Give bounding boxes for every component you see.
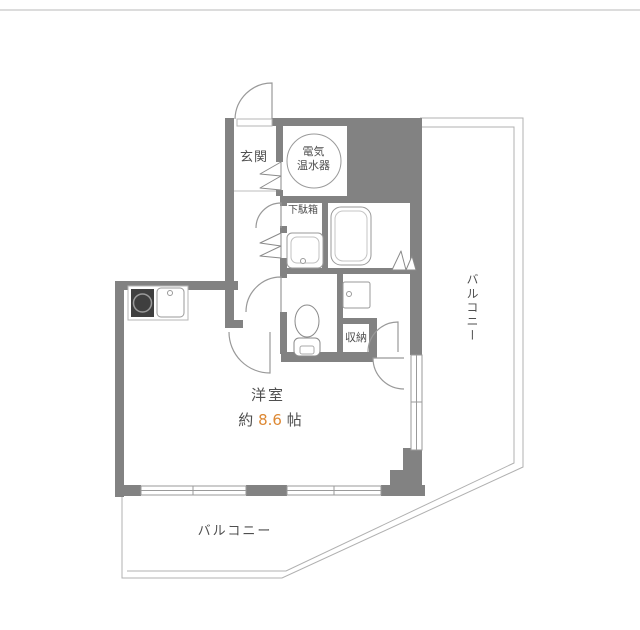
bathroom — [331, 207, 371, 265]
entrance-threshold — [237, 119, 272, 126]
floorplan-page: 玄関 電気 温水器 下駄箱 収納 洋室 約 8.6 帖 バルコニー バルコニー — [0, 0, 640, 630]
floorplan-drawing — [0, 0, 640, 630]
water-heater-label-line1: 電気 — [285, 145, 342, 159]
toilet — [294, 305, 320, 356]
balcony-bottom-label: バルコニー — [188, 525, 282, 540]
wall-bottom-seg1 — [115, 485, 141, 496]
wall-shaft — [347, 118, 422, 203]
water-heater-label-line2: 温水器 — [285, 159, 342, 173]
corridor-mainroom-door-arc — [229, 332, 270, 373]
wall-toilet-right — [337, 274, 343, 358]
entrance-door-arc — [235, 83, 272, 119]
toilet-door-arc — [246, 277, 281, 312]
balcony-right-label: バルコニー — [458, 265, 478, 350]
toilet-tank — [294, 338, 320, 356]
wall-heater-bottom — [283, 196, 347, 203]
wall-bottom-seg2 — [246, 485, 287, 496]
toilet-bowl — [295, 305, 319, 337]
kitchen-stove — [131, 289, 154, 317]
water-heater-label: 電気 温水器 — [285, 145, 342, 173]
bath-door-triangle-large — [392, 251, 406, 270]
sink-faucet-icon — [168, 291, 173, 296]
storage-label: 収納 — [339, 332, 373, 345]
corridor-folding-door-upper — [260, 233, 281, 246]
wall-corridor-stub — [225, 320, 243, 328]
wall-mainroom-west — [115, 281, 124, 497]
washroom-basin — [287, 233, 323, 268]
shoe-cabinet-label: 下駄箱 — [282, 205, 324, 217]
wall-genkan-divider-lower — [276, 190, 283, 196]
genkan-folding-door-lower — [260, 176, 281, 190]
wall-corner-step2 — [390, 470, 422, 496]
kitchen — [128, 286, 188, 320]
size-prefix: 約 — [238, 411, 253, 429]
mainroom-south-door-arc — [373, 358, 404, 389]
wall-east-upper — [410, 203, 422, 355]
wall-top — [272, 118, 347, 126]
wall-genkan-divider-upper — [276, 126, 283, 162]
corridor-folding-door-lower — [260, 246, 281, 258]
washroom-door-arc — [256, 203, 281, 228]
size-unit: 帖 — [287, 411, 302, 429]
powder-basin-faucet-icon — [347, 292, 352, 297]
main-room-size-label: 約 8.6 帖 — [218, 412, 322, 429]
genkan-label: 玄関 — [231, 151, 277, 166]
washbasin-drain-icon — [301, 259, 306, 264]
wall-west-corridor — [225, 118, 234, 328]
bathtub — [331, 207, 371, 265]
wall-corridor-right-d — [280, 312, 287, 354]
main-room-label: 洋室 — [236, 387, 300, 404]
powder-basin — [343, 282, 370, 308]
size-value: 8.6 — [258, 411, 282, 429]
